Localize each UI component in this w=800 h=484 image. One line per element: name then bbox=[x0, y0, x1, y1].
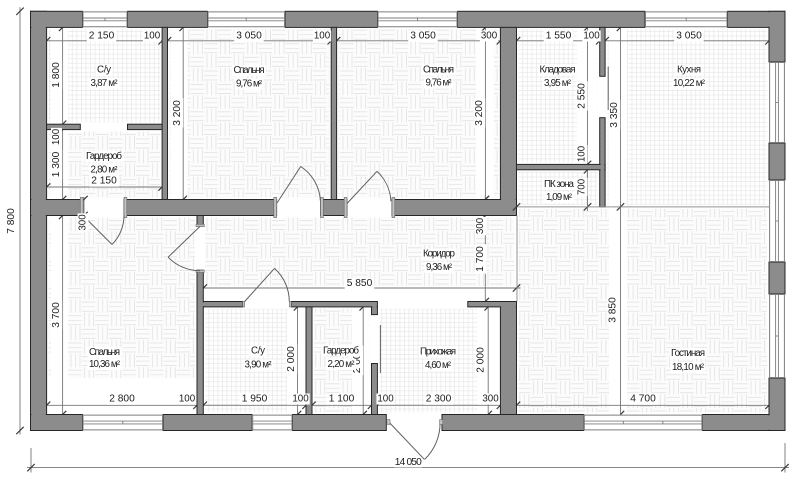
svg-text:Гардероб: Гардероб bbox=[86, 151, 122, 162]
svg-text:Кухня: Кухня bbox=[677, 65, 701, 76]
svg-text:1 100: 1 100 bbox=[329, 394, 355, 405]
svg-text:С/у: С/у bbox=[251, 346, 265, 357]
svg-text:9,76 м²: 9,76 м² bbox=[426, 78, 453, 89]
svg-text:3 050: 3 050 bbox=[410, 31, 436, 42]
svg-text:2,80 м²: 2,80 м² bbox=[91, 165, 119, 176]
svg-text:14 050: 14 050 bbox=[395, 457, 422, 468]
svg-text:1 550: 1 550 bbox=[546, 31, 572, 42]
svg-text:Коридор: Коридор bbox=[423, 249, 456, 260]
svg-text:1 700: 1 700 bbox=[475, 246, 486, 272]
svg-text:Прихожая: Прихожая bbox=[420, 347, 456, 358]
svg-text:3 350: 3 350 bbox=[609, 102, 620, 128]
svg-text:3 050: 3 050 bbox=[236, 31, 262, 42]
svg-text:2 150: 2 150 bbox=[89, 31, 115, 42]
svg-text:3,95 м²: 3,95 м² bbox=[544, 78, 572, 89]
svg-text:100: 100 bbox=[583, 31, 600, 42]
svg-text:300: 300 bbox=[78, 214, 89, 231]
svg-text:Спальня: Спальня bbox=[89, 347, 120, 358]
svg-text:2 800: 2 800 bbox=[109, 394, 135, 405]
svg-text:5 850: 5 850 bbox=[347, 278, 373, 289]
svg-text:100: 100 bbox=[577, 145, 588, 162]
svg-text:1,09 м²: 1,09 м² bbox=[546, 192, 573, 203]
svg-text:2 150: 2 150 bbox=[91, 176, 117, 187]
svg-text:10,22 м²: 10,22 м² bbox=[673, 78, 706, 89]
svg-text:1 800: 1 800 bbox=[51, 62, 62, 88]
svg-text:2 000: 2 000 bbox=[476, 347, 487, 373]
svg-text:18,10 м²: 18,10 м² bbox=[672, 362, 705, 373]
svg-text:2 300: 2 300 bbox=[426, 394, 452, 405]
svg-text:3,87 м²: 3,87 м² bbox=[91, 78, 119, 89]
svg-text:3 050: 3 050 bbox=[676, 31, 702, 42]
svg-text:3 200: 3 200 bbox=[172, 100, 183, 126]
svg-text:100: 100 bbox=[179, 394, 196, 405]
svg-text:100: 100 bbox=[51, 128, 62, 145]
svg-text:Кладовая: Кладовая bbox=[540, 65, 576, 76]
svg-text:10,36 м²: 10,36 м² bbox=[89, 359, 121, 370]
svg-text:Гостиная: Гостиная bbox=[671, 348, 705, 359]
svg-text:4 700: 4 700 bbox=[630, 394, 656, 405]
svg-text:3 700: 3 700 bbox=[51, 302, 62, 328]
svg-text:ПК зона: ПК зона bbox=[544, 179, 575, 190]
svg-text:700: 700 bbox=[577, 178, 588, 195]
svg-text:100: 100 bbox=[377, 394, 394, 405]
svg-text:300: 300 bbox=[482, 394, 499, 405]
svg-text:Спальня: Спальня bbox=[423, 65, 454, 76]
svg-text:100: 100 bbox=[292, 394, 309, 405]
svg-text:7 800: 7 800 bbox=[6, 208, 17, 234]
svg-text:100: 100 bbox=[314, 31, 331, 42]
svg-text:Гардероб: Гардероб bbox=[323, 346, 359, 357]
svg-text:2 550: 2 550 bbox=[577, 83, 588, 109]
svg-text:3,90 м²: 3,90 м² bbox=[245, 360, 273, 371]
svg-text:С/у: С/у bbox=[97, 65, 111, 76]
svg-text:2 000: 2 000 bbox=[286, 346, 297, 372]
svg-text:3 200: 3 200 bbox=[474, 100, 485, 126]
svg-text:1 300: 1 300 bbox=[51, 151, 62, 177]
svg-text:2,20 м²: 2,20 м² bbox=[328, 359, 356, 370]
svg-text:300: 300 bbox=[481, 31, 498, 42]
svg-text:3 850: 3 850 bbox=[608, 297, 619, 323]
svg-text:100: 100 bbox=[144, 31, 161, 42]
svg-text:9,76 м²: 9,76 м² bbox=[236, 79, 263, 90]
svg-text:300: 300 bbox=[475, 217, 486, 234]
svg-text:9,36 м²: 9,36 м² bbox=[426, 262, 453, 273]
svg-text:4,60 м²: 4,60 м² bbox=[425, 360, 452, 371]
svg-text:Спальня: Спальня bbox=[234, 65, 265, 76]
svg-text:1 950: 1 950 bbox=[242, 394, 268, 405]
